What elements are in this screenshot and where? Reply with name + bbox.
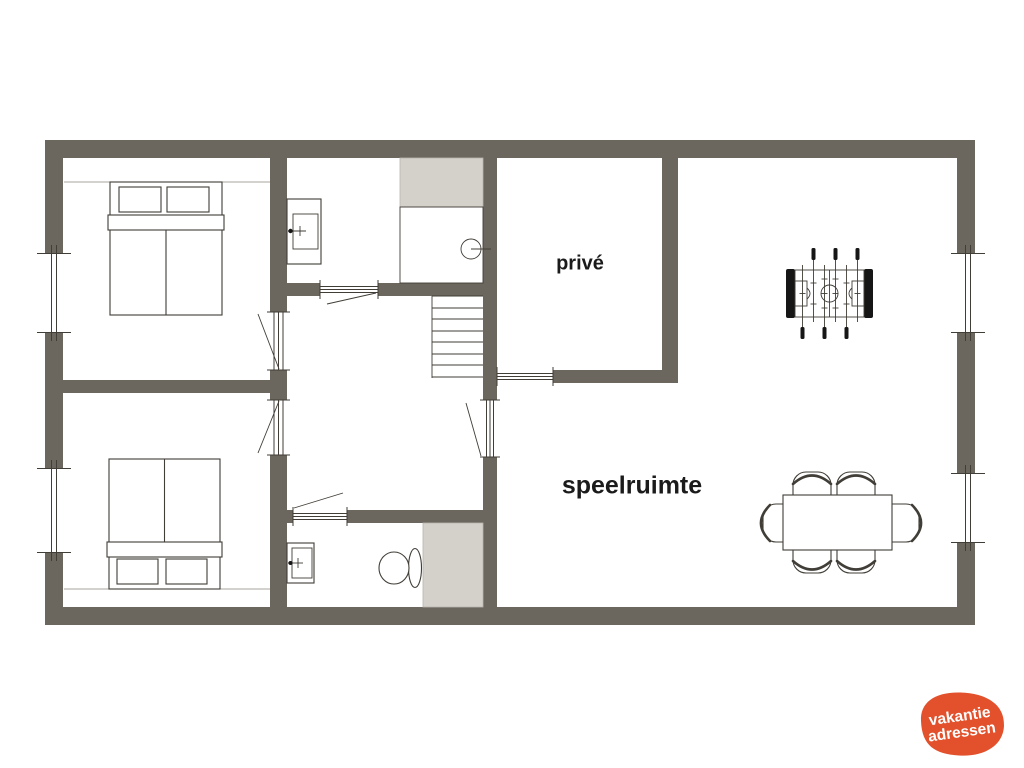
wall-bathroom-top (270, 283, 497, 296)
pillow (117, 559, 158, 584)
door-hall-playroom (466, 400, 500, 457)
bathroom-shading (423, 523, 483, 607)
washbasin-icon-bottom (287, 543, 314, 583)
vakantieadressen-logo: vakantie adressen (914, 688, 1008, 760)
double-bed-icon-top (108, 182, 224, 315)
window-gap (45, 253, 63, 333)
logo-image: vakantie adressen (914, 688, 1008, 760)
pillow (119, 187, 161, 212)
wall-exterior-bottom (45, 607, 975, 625)
window-right-bottom (951, 465, 985, 551)
dining-table (783, 495, 892, 550)
shower-tray (400, 207, 483, 283)
tap (288, 229, 292, 233)
tap (289, 561, 293, 565)
washbasin-icon-top (287, 199, 321, 264)
door-prive (497, 367, 553, 386)
bed-headboard (108, 215, 224, 230)
floor-plan-page: privé speelruimte vakantie adressen (0, 0, 1024, 768)
pillow (166, 559, 207, 584)
window-gap (45, 468, 63, 553)
staircase-icon (432, 296, 483, 378)
window-left-bottom (37, 460, 71, 561)
toilet-icon (379, 549, 422, 588)
toilet-tank (409, 549, 422, 588)
door-bedroom-bottom (258, 400, 290, 455)
pillow (167, 187, 209, 212)
foosball-end (864, 269, 873, 318)
wall-prive-right (662, 158, 678, 370)
double-bed-icon-bottom (107, 459, 222, 589)
door-swing (294, 493, 343, 508)
window-right-top (951, 245, 985, 341)
speelruimte-room-label: speelruimte (562, 472, 702, 501)
foosball-end (786, 269, 795, 318)
wall-exterior-top (45, 140, 975, 158)
door-swing (466, 403, 481, 456)
shower-shading (400, 158, 483, 207)
door-bedroom-top (258, 312, 290, 370)
wall-interior-hall-playroom (483, 158, 497, 607)
door-bathroom-top (320, 280, 378, 304)
prive-room-label: privé (556, 253, 604, 276)
wall-bedroom-divider (63, 380, 287, 393)
window-left-top (37, 245, 71, 341)
shower-icon (400, 158, 491, 283)
door-bathroom-bottom (293, 493, 347, 526)
toilet-bowl (379, 552, 409, 584)
dining-set-icon (761, 472, 921, 573)
bed-headboard (107, 542, 222, 557)
floor-plan-drawing (0, 0, 1024, 768)
foosball-table-icon (786, 248, 873, 339)
foosball-rods (800, 248, 861, 339)
